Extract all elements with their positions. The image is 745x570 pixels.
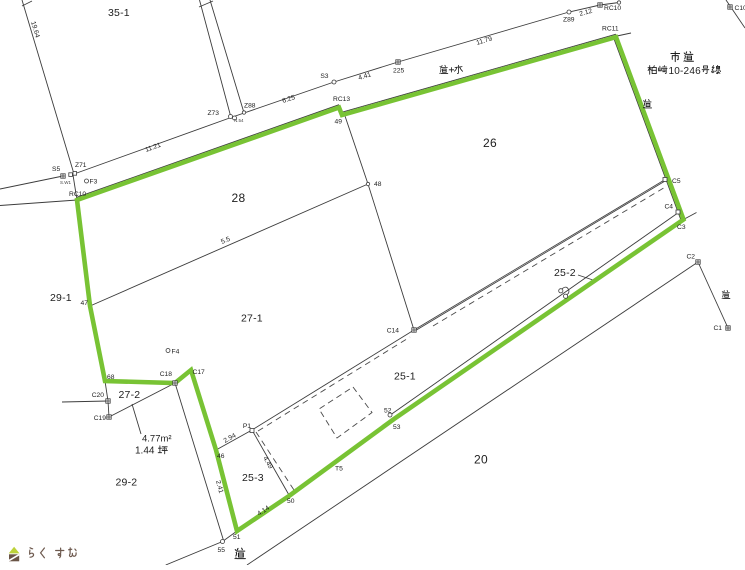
svg-text:RC10: RC10: [69, 191, 86, 198]
svg-text:50: 50: [287, 498, 295, 505]
svg-text:1.44: 1.44: [135, 446, 155, 457]
svg-text:F4: F4: [172, 349, 180, 356]
svg-text:35-1: 35-1: [108, 7, 130, 19]
svg-text:49: 49: [335, 119, 343, 126]
svg-text:C3: C3: [677, 224, 686, 231]
svg-text:C20: C20: [92, 392, 105, 399]
svg-text:4.77m²: 4.77m²: [142, 434, 172, 445]
svg-text:10-246: 10-246: [669, 66, 702, 77]
svg-text:C2: C2: [686, 254, 695, 261]
svg-text:29-2: 29-2: [116, 477, 138, 489]
svg-text:68: 68: [107, 374, 115, 381]
svg-text:P1: P1: [243, 423, 251, 430]
svg-text:C18: C18: [160, 371, 173, 378]
svg-text:C14: C14: [387, 328, 400, 335]
svg-text:29-1: 29-1: [50, 292, 72, 304]
svg-text:27-2: 27-2: [119, 389, 141, 401]
svg-text:C10: C10: [735, 5, 745, 12]
svg-text:26: 26: [483, 136, 497, 150]
svg-text:51: 51: [233, 534, 241, 541]
svg-text:27-1: 27-1: [241, 312, 263, 324]
svg-text:Z73: Z73: [207, 110, 219, 117]
svg-text:47: 47: [81, 300, 89, 307]
svg-text:RC10: RC10: [604, 5, 621, 12]
svg-text:F3: F3: [90, 179, 98, 186]
svg-text:S5: S5: [52, 166, 60, 173]
svg-text:Z89: Z89: [563, 17, 575, 24]
svg-text:25-2: 25-2: [554, 267, 576, 279]
svg-text:Z71: Z71: [75, 162, 87, 169]
svg-text:52: 52: [384, 408, 392, 415]
svg-text:Z88: Z88: [244, 103, 256, 110]
svg-text:25-3: 25-3: [242, 472, 264, 484]
svg-text:S3: S3: [320, 73, 328, 80]
svg-text:T5: T5: [335, 466, 343, 473]
svg-text:25-1: 25-1: [394, 370, 416, 382]
svg-text:C1: C1: [713, 325, 722, 332]
svg-text:28: 28: [232, 191, 246, 205]
svg-text:55: 55: [218, 547, 226, 554]
svg-text:20: 20: [474, 453, 488, 467]
svg-text:C17: C17: [193, 369, 206, 376]
svg-text:RC11: RC11: [602, 26, 619, 33]
svg-text:C5: C5: [672, 178, 681, 185]
svg-text:C19: C19: [94, 415, 107, 422]
svg-text:53: 53: [393, 424, 401, 431]
svg-text:N.54: N.54: [234, 118, 244, 123]
svg-text:C4: C4: [664, 204, 673, 211]
svg-text:46: 46: [217, 453, 225, 460]
svg-text:RC13: RC13: [333, 96, 350, 103]
svg-text:S.W1: S.W1: [60, 180, 71, 185]
svg-text:225: 225: [393, 68, 404, 75]
svg-text:48: 48: [374, 181, 382, 188]
